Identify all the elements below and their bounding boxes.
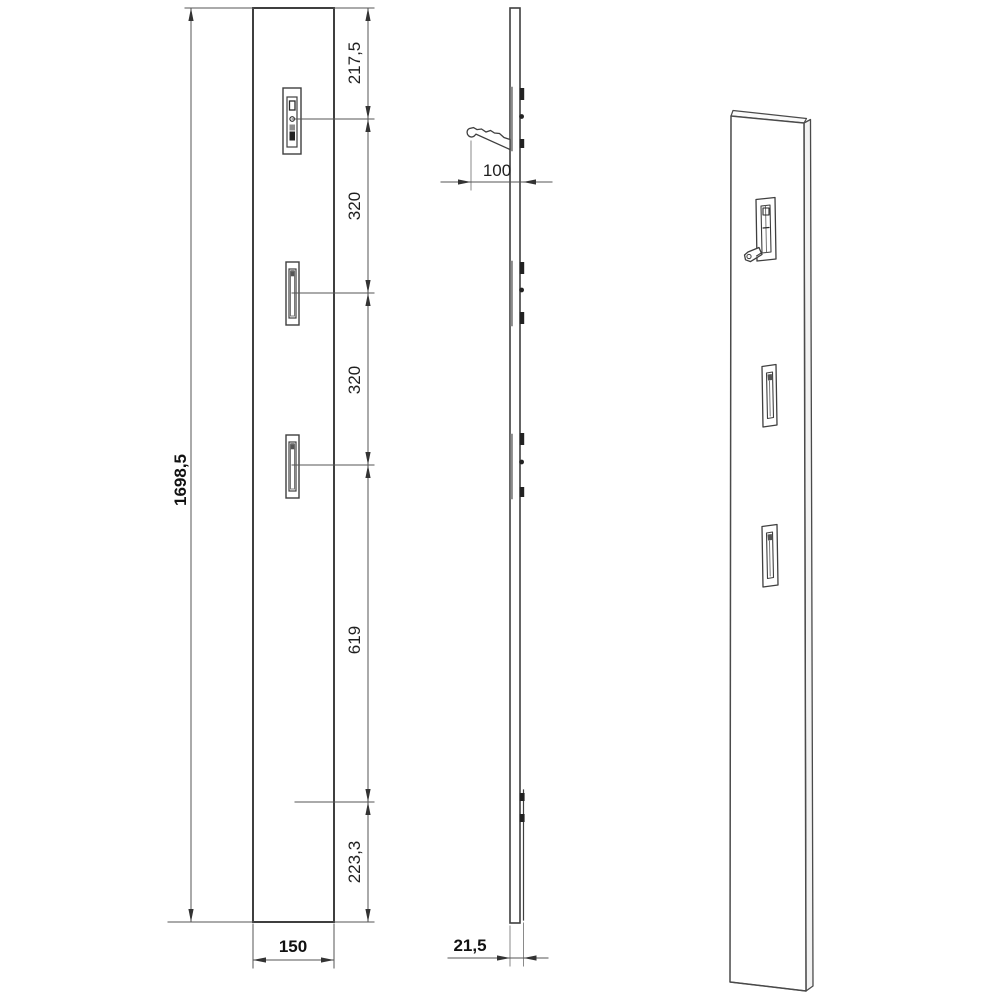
panel-3d-hook-slot-3 (762, 525, 778, 588)
dim-overall-height: 1698,5 (171, 8, 194, 922)
front-hook-slot-3 (286, 435, 299, 498)
panel-3d-hook-slot-2 (762, 365, 777, 428)
arrow-up-icon (365, 802, 370, 815)
arrow-down-icon (365, 909, 370, 922)
drawing-svg: 1698,5 217,5 320 320 619 223,3 (0, 0, 1000, 1000)
arrow-left-icon (253, 957, 266, 962)
hook1-mid-fitting (290, 125, 296, 131)
arrow-right-icon (458, 179, 471, 184)
arrow-left-icon (523, 179, 536, 184)
side-view: 100 21,5 (441, 8, 552, 966)
arrow-up-icon (365, 465, 370, 478)
arrow-down-icon (188, 909, 193, 922)
arrow-up-icon (365, 119, 370, 132)
front-hook-slot-1 (283, 88, 301, 154)
arrow-right-icon (321, 957, 334, 962)
top-offset-label: 217,5 (345, 42, 364, 85)
arrow-down-icon (365, 106, 370, 119)
dim-hook-projection: 100 (441, 141, 552, 190)
arrow-right-icon (497, 955, 510, 960)
bottom-offset-label: 223,3 (345, 841, 364, 884)
technical-drawing-canvas: 1698,5 217,5 320 320 619 223,3 (0, 0, 1000, 1000)
side-hook-profile (467, 128, 510, 150)
hook1-hook2-label: 320 (345, 192, 364, 220)
arrow-up-icon (188, 8, 193, 21)
front-view: 1698,5 217,5 320 320 619 223,3 (168, 8, 374, 968)
hook2-hook3-label: 320 (345, 366, 364, 394)
hook1-bottom-fitting (290, 132, 296, 141)
perspective-view (730, 111, 813, 992)
width-label: 150 (279, 937, 307, 956)
arrow-up-icon (365, 8, 370, 21)
arrow-up-icon (365, 293, 370, 306)
arrow-down-icon (365, 280, 370, 293)
dim-width: 150 (253, 937, 334, 963)
hook3-bracket-label: 619 (345, 626, 364, 654)
thickness-label: 21,5 (453, 936, 486, 955)
overall-height-label: 1698,5 (171, 454, 190, 506)
hook1-top-fitting (290, 101, 296, 110)
arrow-down-icon (365, 789, 370, 802)
hook-projection-label: 100 (483, 161, 511, 180)
arrow-down-icon (365, 452, 370, 465)
arrow-left-icon (524, 955, 537, 960)
dim-thickness: 21,5 (448, 923, 548, 966)
